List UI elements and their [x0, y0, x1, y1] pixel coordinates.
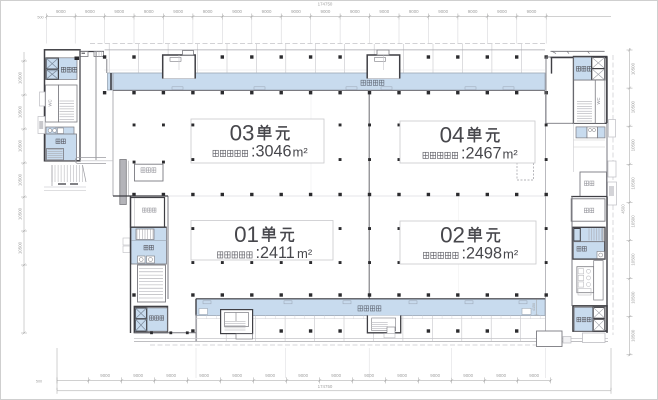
- svg-text:9000: 9000: [527, 9, 537, 14]
- svg-text:m²: m²: [503, 147, 519, 162]
- svg-text:9000: 9000: [133, 373, 143, 378]
- svg-text:500: 500: [36, 379, 42, 383]
- svg-text:10500: 10500: [631, 329, 636, 342]
- svg-text:9000: 9000: [379, 9, 389, 14]
- svg-text:10500: 10500: [631, 139, 636, 152]
- svg-text:9000: 9000: [262, 9, 272, 14]
- svg-text:10500: 10500: [631, 177, 636, 190]
- svg-text:10500: 10500: [18, 105, 23, 118]
- svg-text:9000: 9000: [298, 373, 308, 378]
- svg-text:9000: 9000: [331, 373, 341, 378]
- svg-text:m²: m²: [293, 145, 309, 160]
- svg-text::2411: :2411: [256, 244, 295, 262]
- svg-text::2467: :2467: [461, 145, 502, 163]
- svg-text:9000: 9000: [430, 373, 440, 378]
- svg-text:9000: 9000: [203, 9, 213, 14]
- svg-text:9000: 9000: [468, 9, 478, 14]
- svg-text:9000: 9000: [350, 9, 360, 14]
- svg-text:m²: m²: [297, 246, 313, 261]
- svg-text:10500: 10500: [631, 215, 636, 228]
- svg-text:9000: 9000: [409, 9, 419, 14]
- svg-text:9000: 9000: [85, 9, 95, 14]
- svg-text:9000: 9000: [265, 373, 275, 378]
- svg-text:10500: 10500: [18, 241, 23, 254]
- svg-text:9000: 9000: [232, 373, 242, 378]
- svg-text:9000: 9000: [397, 373, 407, 378]
- svg-text:174750: 174750: [318, 2, 333, 7]
- svg-text:9000: 9000: [364, 373, 374, 378]
- svg-text:9000: 9000: [438, 9, 448, 14]
- svg-text:10500: 10500: [631, 100, 636, 113]
- svg-text:9000: 9000: [100, 373, 110, 378]
- svg-text:9000: 9000: [173, 9, 183, 14]
- svg-text:9000: 9000: [166, 373, 176, 378]
- svg-text:9000: 9000: [56, 9, 66, 14]
- svg-text:4150: 4150: [532, 303, 536, 311]
- svg-text:10500: 10500: [18, 173, 23, 186]
- svg-text:9000: 9000: [321, 9, 331, 14]
- svg-text::3046: :3046: [251, 143, 292, 161]
- svg-text:4500: 4500: [621, 204, 626, 214]
- svg-text:9000: 9000: [114, 9, 124, 14]
- svg-text:9000: 9000: [463, 373, 473, 378]
- svg-text:9000: 9000: [232, 9, 242, 14]
- svg-text:500: 500: [37, 16, 43, 20]
- svg-text:9000: 9000: [199, 373, 209, 378]
- svg-text:9000: 9000: [496, 373, 506, 378]
- svg-text:m²: m²: [503, 247, 519, 262]
- svg-text:WC: WC: [48, 100, 53, 107]
- svg-text:174750: 174750: [318, 384, 333, 389]
- svg-text:10500: 10500: [631, 253, 636, 266]
- svg-text:10500: 10500: [18, 71, 23, 84]
- svg-text:9000: 9000: [144, 9, 154, 14]
- svg-text:WC: WC: [596, 98, 601, 105]
- svg-text:9000: 9000: [529, 373, 539, 378]
- svg-text::2498: :2498: [462, 245, 503, 263]
- svg-text:9000: 9000: [497, 9, 507, 14]
- svg-text:10500: 10500: [631, 62, 636, 75]
- svg-text:9000: 9000: [291, 9, 301, 14]
- svg-text:10500: 10500: [631, 291, 636, 304]
- svg-text:10500: 10500: [18, 207, 23, 220]
- svg-text:10500: 10500: [18, 139, 23, 152]
